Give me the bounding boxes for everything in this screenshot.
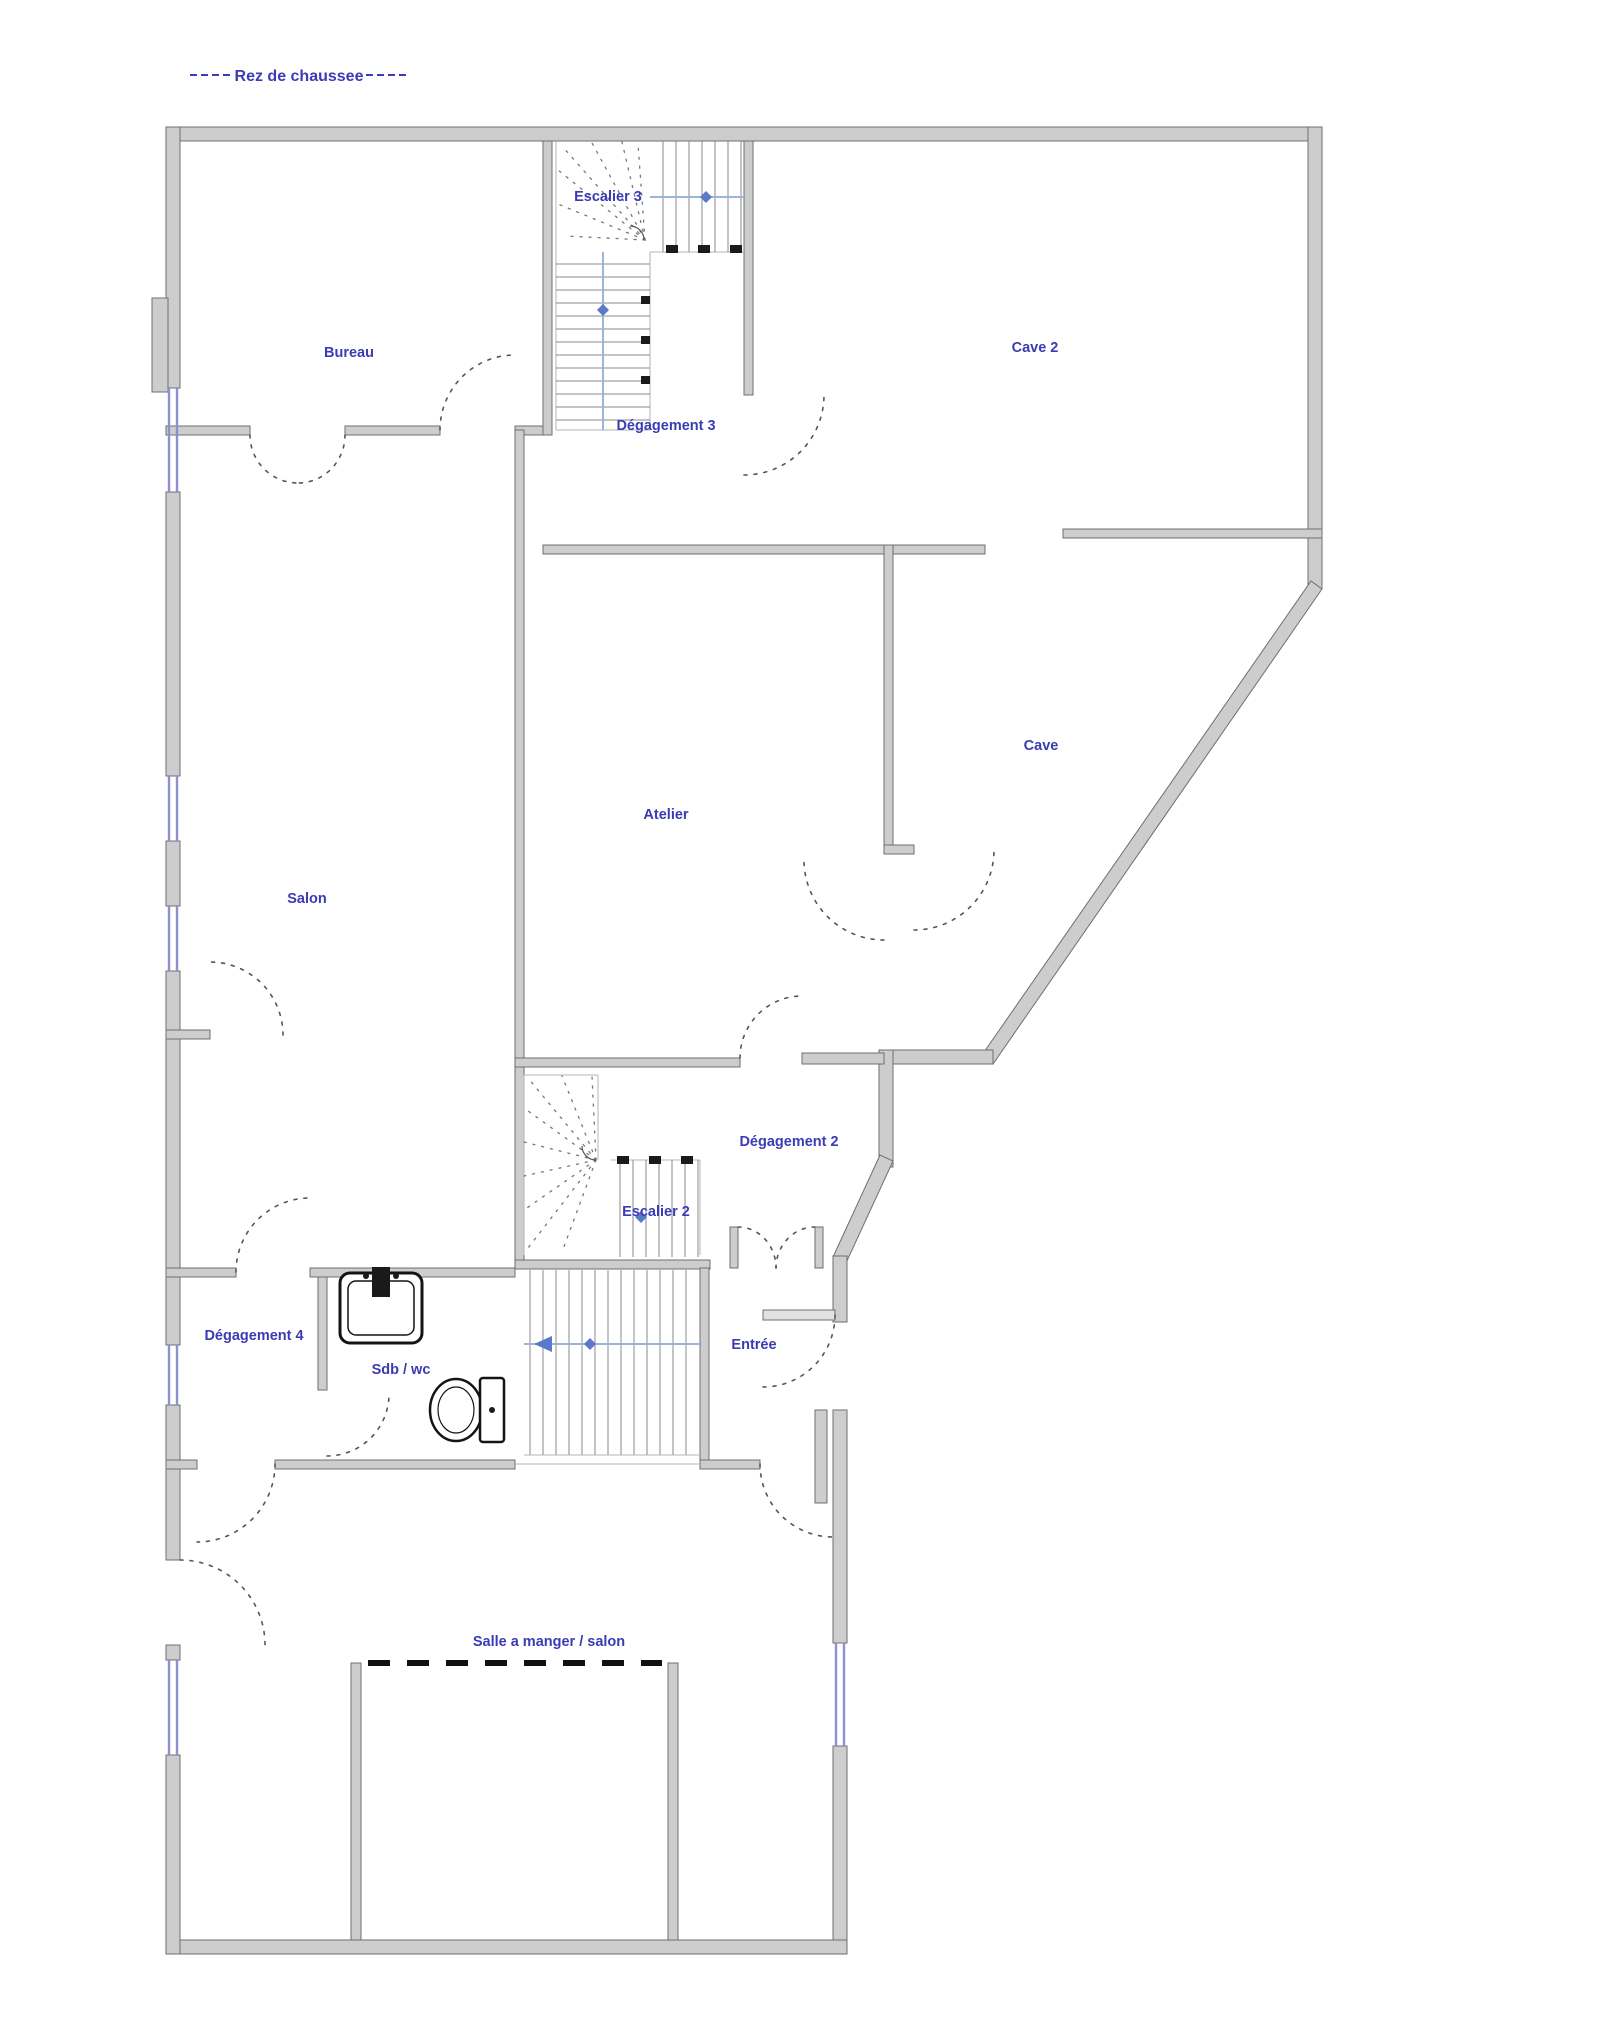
room-label-sdb-wc: Sdb / wc (372, 1362, 431, 1378)
door-arc (776, 1227, 815, 1268)
veranda-wall-right (668, 1663, 678, 1940)
window (836, 1643, 844, 1746)
room-label-salle-a-manger: Salle a manger / salon (473, 1634, 625, 1650)
window (169, 1660, 177, 1755)
room-label-entree: Entrée (731, 1337, 776, 1353)
door-arc (740, 996, 802, 1058)
door-arc (250, 435, 298, 483)
room-label-bureau: Bureau (324, 345, 374, 361)
sink-icon (340, 1267, 422, 1343)
window (169, 906, 177, 971)
staircase-escalier-2 (524, 1075, 700, 1257)
windows-layer (169, 388, 844, 1755)
door-arc (180, 1560, 265, 1645)
fixtures-layer (340, 1267, 504, 1442)
room-label-escalier-2: Escalier 2 (622, 1204, 690, 1220)
room-label-degagement-3: Dégagement 3 (616, 418, 715, 434)
staircase-escalier-3 (556, 141, 744, 430)
window (169, 388, 177, 492)
entry-door-leaf (763, 1310, 835, 1320)
toilet-icon (430, 1378, 504, 1442)
room-label-salon: Salon (287, 891, 326, 907)
floorplan-title: Rez de chaussee (190, 68, 408, 85)
door-arc (804, 860, 884, 940)
door-arc (298, 435, 345, 483)
room-label-degagement-2: Dégagement 2 (739, 1134, 838, 1150)
door-arc (327, 1394, 389, 1456)
door-arc (744, 395, 824, 475)
stair-direction-arrow (597, 304, 609, 316)
room-label-cave-2: Cave 2 (1012, 340, 1059, 356)
window (169, 1345, 177, 1405)
door-arc (738, 1227, 776, 1268)
room-label-escalier-3: Escalier 3 (574, 189, 642, 205)
door-arc (440, 355, 515, 430)
floor-plan-page: Rez de chaussee (0, 0, 1600, 2027)
door-arc (210, 962, 283, 1035)
staircase-main (515, 1270, 700, 1464)
door-arc (914, 850, 994, 930)
veranda-wall-left (351, 1663, 361, 1940)
floor-plan: Rez de chaussee (0, 0, 1600, 2027)
stair-direction-arrow (584, 1338, 596, 1350)
page-title: Rez de chaussee (235, 68, 364, 85)
labels-layer: Bureau Escalier 3 Cave 2 Dégagement 3 At… (204, 189, 1058, 1650)
room-label-cave: Cave (1024, 738, 1059, 754)
room-label-degagement-4: Dégagement 4 (204, 1328, 303, 1344)
door-arc (197, 1464, 275, 1542)
window (169, 776, 177, 841)
walls-layer (152, 127, 1322, 1954)
room-label-atelier: Atelier (643, 807, 688, 823)
door-arc (236, 1198, 310, 1272)
